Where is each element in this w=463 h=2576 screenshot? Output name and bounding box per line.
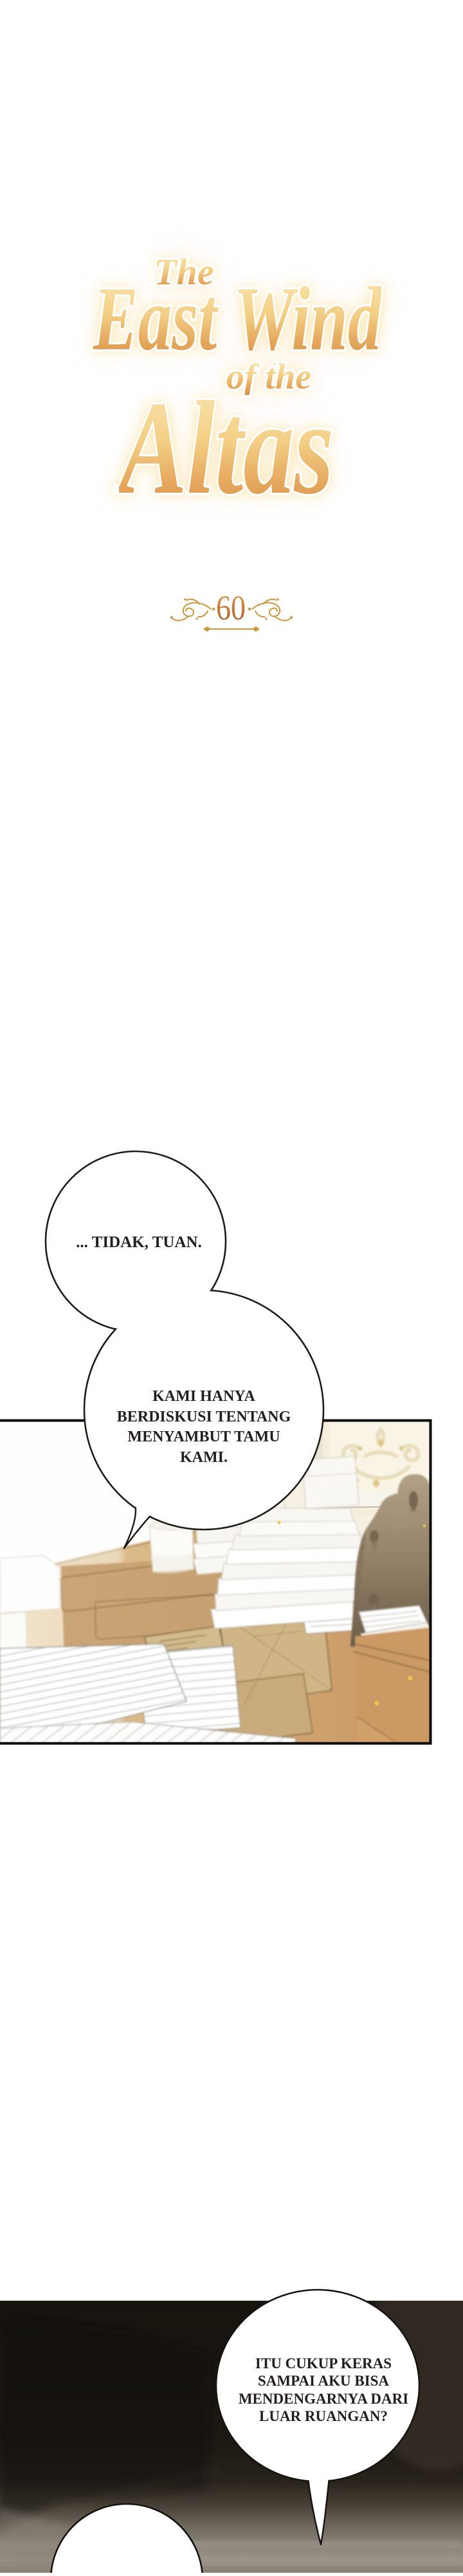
- svg-text:60: 60: [216, 589, 246, 627]
